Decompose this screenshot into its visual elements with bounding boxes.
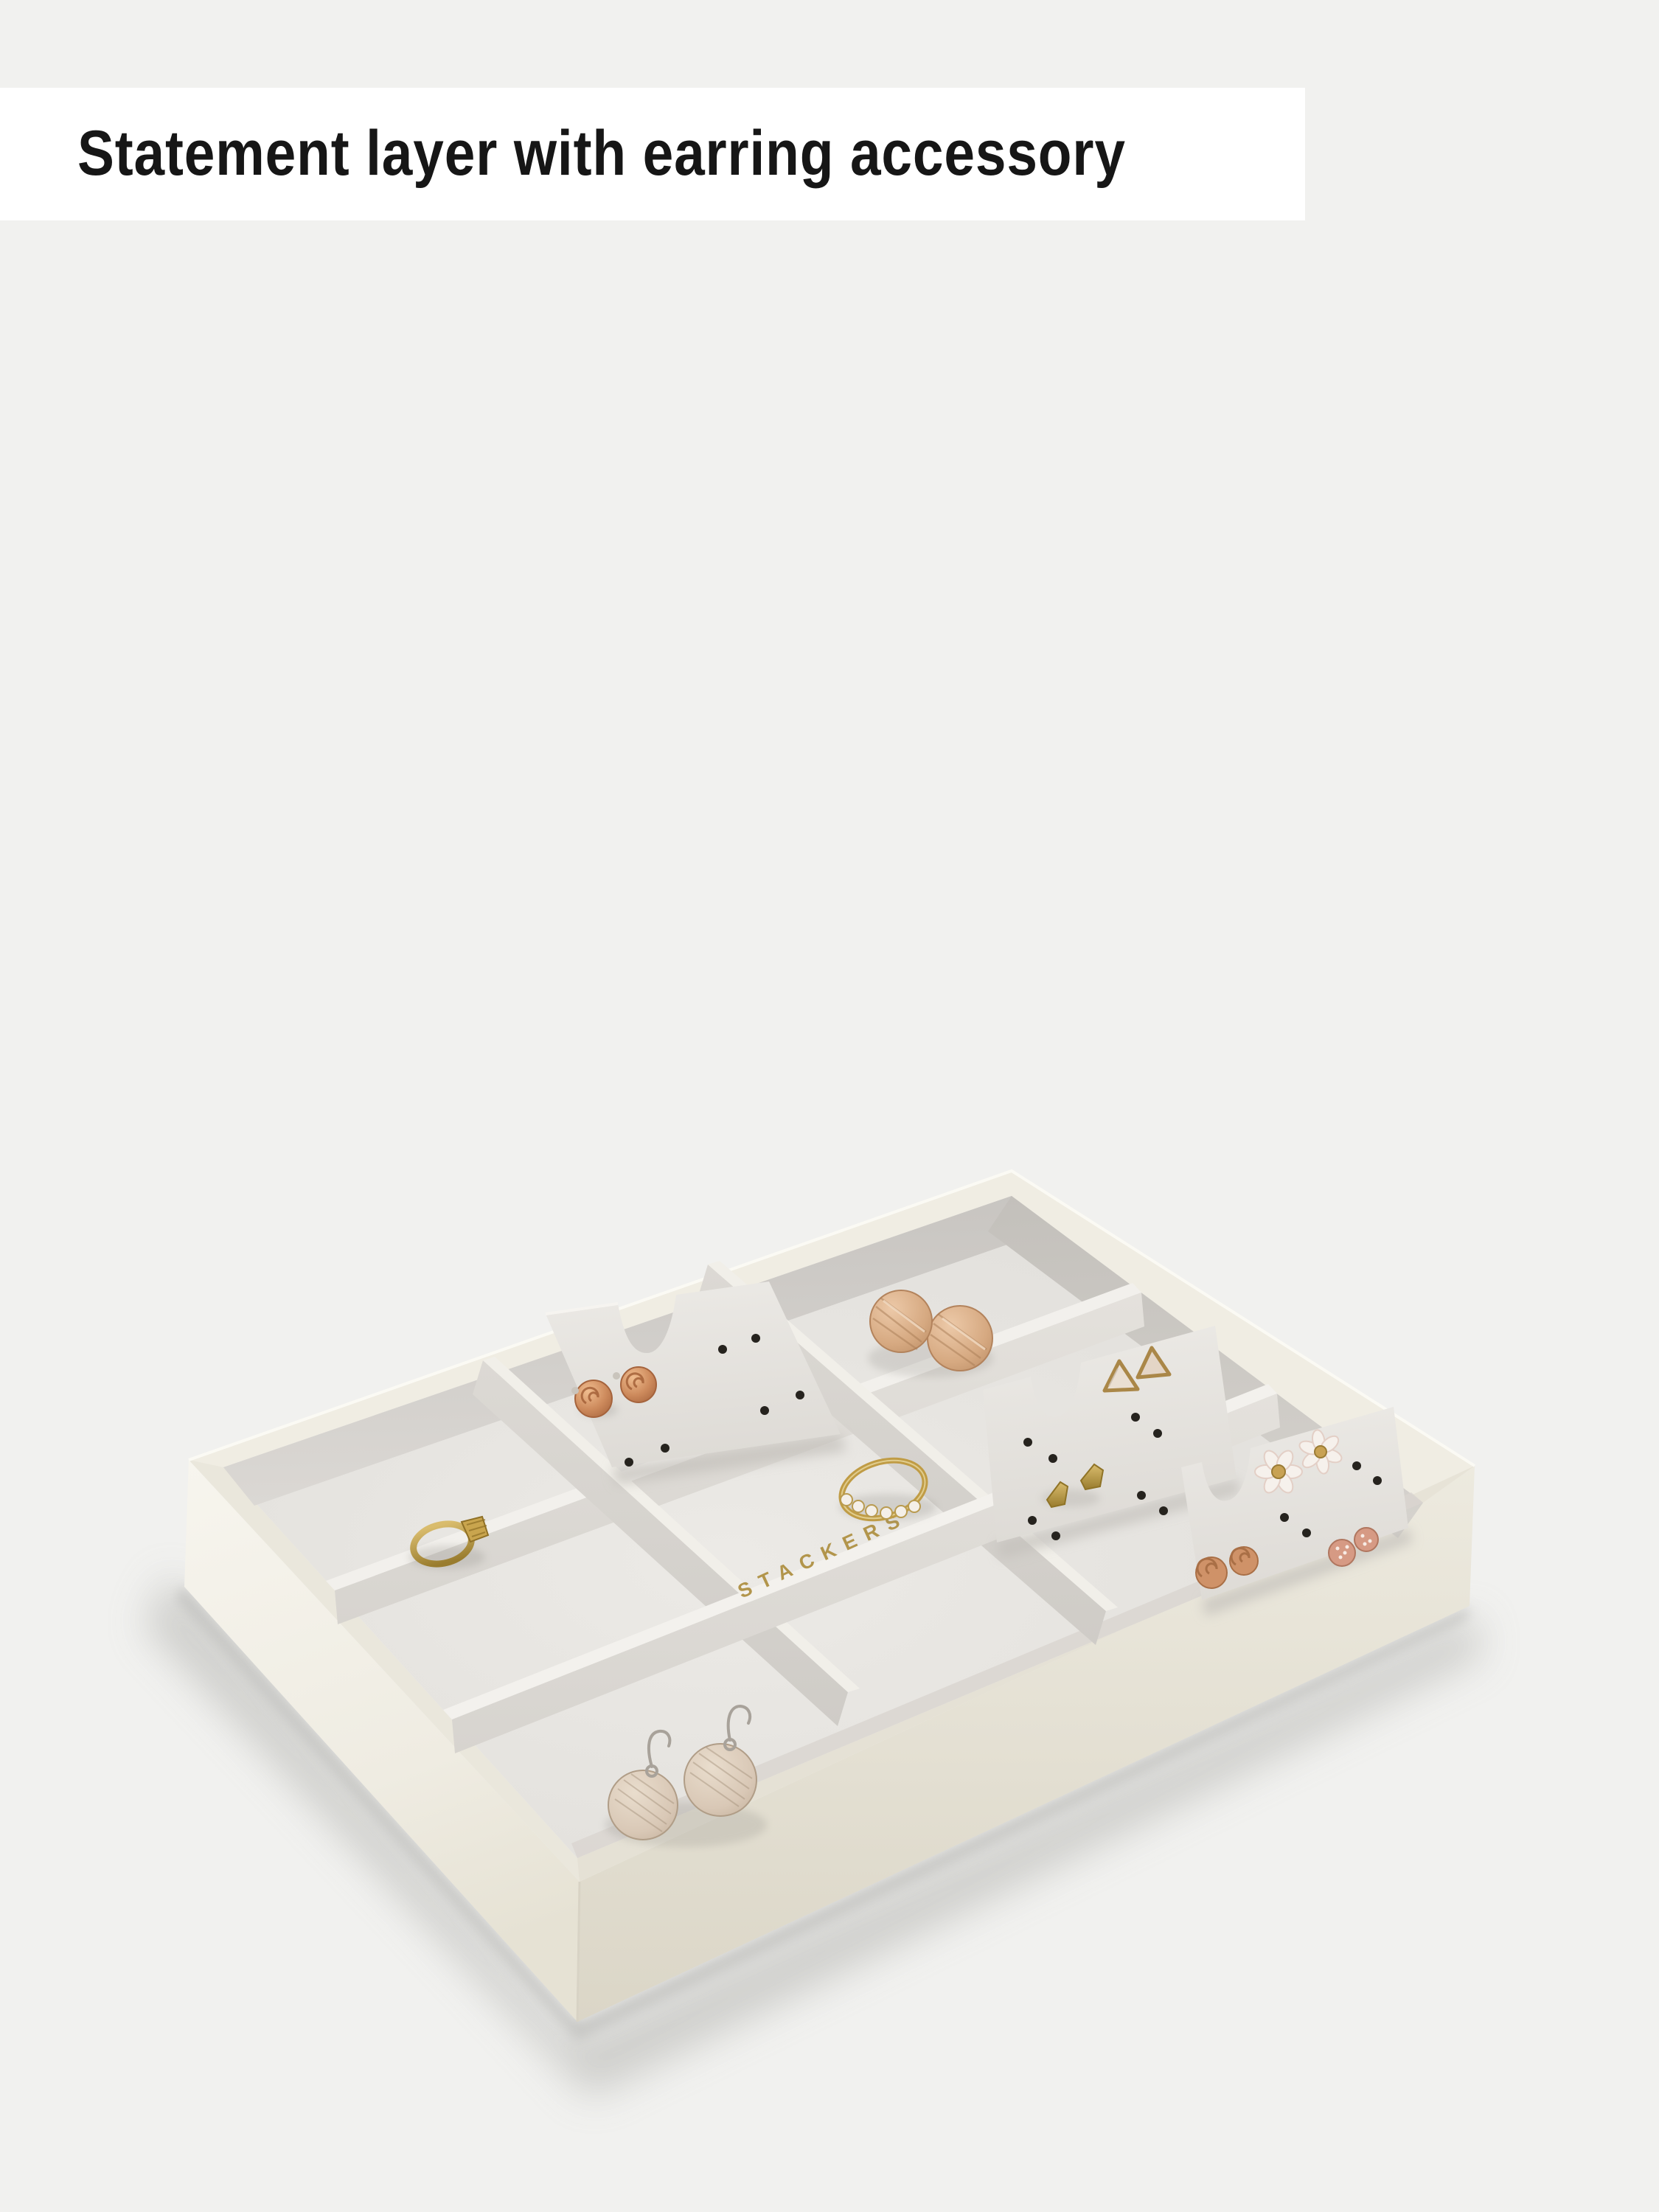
title-banner: Statement layer with earring accessory: [0, 88, 1305, 220]
banner-title: Statement layer with earring accessory: [77, 118, 1126, 189]
product-page: Statement layer with earring accessory: [0, 0, 1659, 2212]
